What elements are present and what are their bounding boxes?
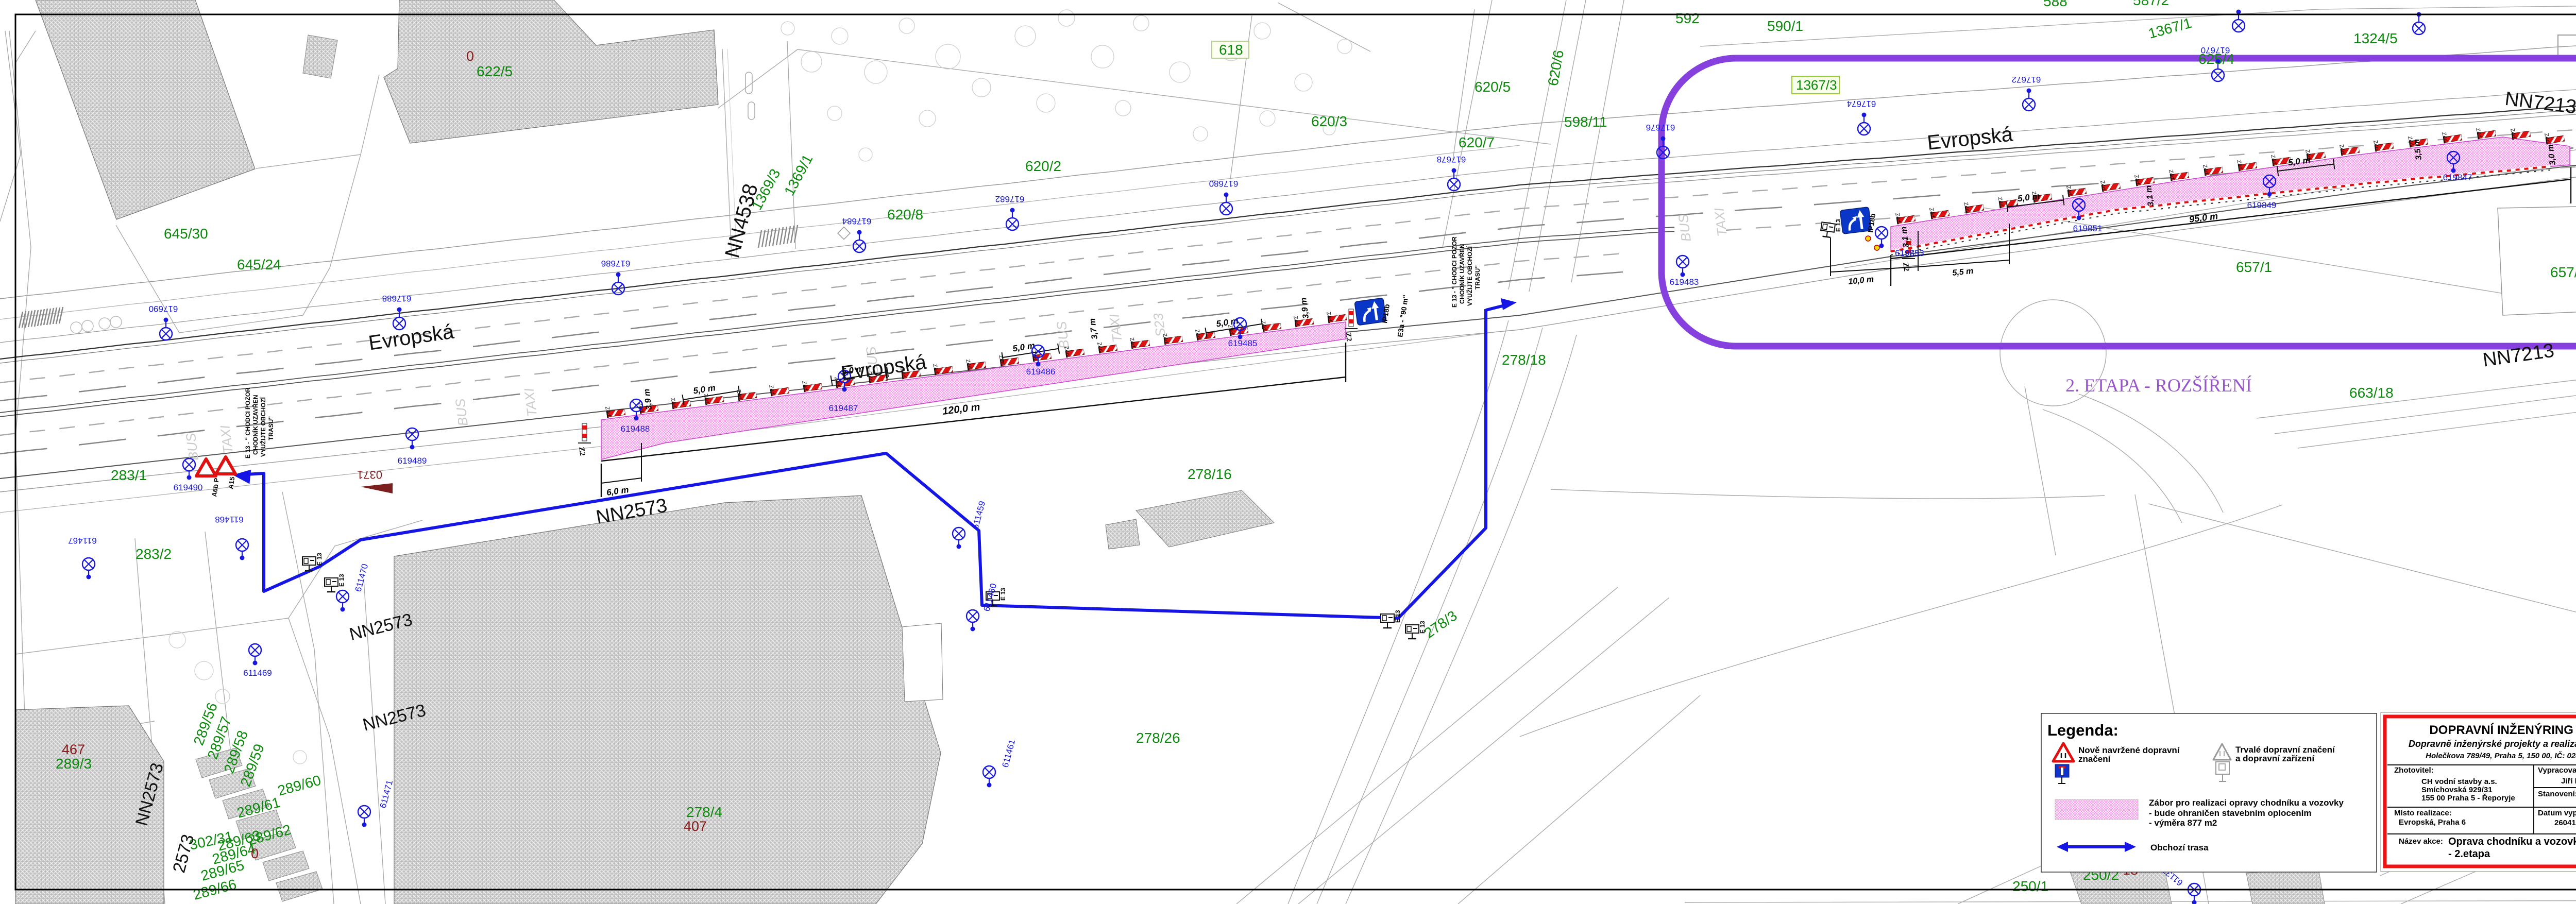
svg-text:617676: 617676 — [1646, 123, 1675, 132]
svg-text:619851: 619851 — [2073, 224, 2103, 233]
svg-text:619486: 619486 — [1026, 367, 1056, 377]
svg-text:TRASU": TRASU" — [1474, 265, 1481, 289]
svg-text:619487: 619487 — [829, 403, 858, 413]
svg-text:E 13: E 13 — [1394, 610, 1401, 623]
svg-text:620/8: 620/8 — [887, 207, 923, 223]
svg-text:Místo realizace:: Místo realizace: — [2394, 809, 2452, 817]
svg-text:CHODNÍK UZAVŘEN: CHODNÍK UZAVŘEN — [1458, 244, 1466, 304]
svg-text:TRASU": TRASU" — [267, 416, 275, 440]
svg-text:588: 588 — [2043, 0, 2067, 9]
svg-text:278/18: 278/18 — [1502, 352, 1546, 368]
svg-text:VYUŽIJTE OBCHOZÍ: VYUŽIJTE OBCHOZÍ — [259, 397, 267, 457]
svg-text:Obchozí trasa: Obchozí trasa — [2150, 843, 2209, 852]
svg-text:2. ETAPA - ROZŠÍŘENÍ: 2. ETAPA - ROZŠÍŘENÍ — [2065, 375, 2252, 396]
svg-text:617678: 617678 — [1437, 155, 1466, 164]
svg-text:E 13: E 13 — [338, 574, 345, 587]
svg-text:590/1: 590/1 — [1767, 18, 1803, 34]
svg-text:Z2: Z2 — [577, 446, 586, 456]
svg-text:0: 0 — [466, 48, 474, 64]
svg-text:619485: 619485 — [1228, 338, 1258, 348]
svg-text:598/11: 598/11 — [1564, 114, 1607, 130]
svg-text:622/5: 622/5 — [477, 63, 513, 79]
svg-text:155 00 Praha 5 - Řeporyje: 155 00 Praha 5 - Řeporyje — [2421, 793, 2515, 803]
svg-text:619483: 619483 — [1670, 277, 1699, 287]
svg-text:- bude ohraničen stavebním opl: - bude ohraničen stavebním oplocením — [2149, 808, 2312, 818]
svg-text:Název akce:: Název akce: — [2399, 837, 2443, 846]
svg-text:E 13: E 13 — [316, 553, 323, 566]
svg-text:618: 618 — [1219, 42, 1243, 58]
svg-text:250/1: 250/1 — [2012, 878, 2048, 894]
svg-text:Jiří Hnát: Jiří Hnát — [2561, 777, 2576, 786]
svg-text:663/18: 663/18 — [2349, 385, 2394, 401]
svg-text:592: 592 — [1675, 10, 1700, 26]
svg-text:- 2.etapa: - 2.etapa — [2448, 848, 2490, 860]
svg-text:611468: 611468 — [215, 515, 243, 524]
svg-text:Zábor pro realizaci opravy cho: Zábor pro realizaci opravy chodníku a vo… — [2149, 798, 2344, 808]
svg-text:620/5: 620/5 — [1475, 79, 1511, 95]
svg-text:617674: 617674 — [1847, 99, 1876, 109]
svg-text:E 13 - " CHODCI POZOR: E 13 - " CHODCI POZOR — [244, 387, 251, 458]
svg-text:Stanovení:: Stanovení: — [2538, 790, 2576, 798]
svg-text:CH vodní stavby a.s.: CH vodní stavby a.s. — [2421, 777, 2497, 786]
svg-text:619490: 619490 — [174, 483, 203, 492]
svg-text:619853: 619853 — [1895, 248, 1924, 258]
svg-text:289/3: 289/3 — [56, 756, 92, 772]
svg-text:278/4: 278/4 — [686, 804, 722, 820]
svg-text:617682: 617682 — [995, 194, 1025, 204]
svg-text:VYUŽIJTE OBCHOZÍ: VYUŽIJTE OBCHOZÍ — [1466, 246, 1473, 306]
svg-text:Evropská, Praha 6: Evropská, Praha 6 — [2399, 818, 2466, 827]
svg-text:283/2: 283/2 — [135, 546, 172, 562]
svg-text:407: 407 — [684, 818, 707, 834]
svg-text:619847: 619847 — [2443, 173, 2472, 182]
svg-text:617686: 617686 — [601, 259, 631, 268]
svg-text:587/2: 587/2 — [2133, 0, 2169, 8]
svg-text:620/2: 620/2 — [1025, 158, 1061, 174]
svg-text:620/7: 620/7 — [1459, 134, 1495, 150]
svg-text:Dopravně inženýrské projekty a: Dopravně inženýrské projekty a realizace… — [2409, 739, 2576, 749]
svg-text:620/3: 620/3 — [1311, 113, 1347, 129]
svg-text:611467: 611467 — [68, 536, 96, 545]
svg-text:617672: 617672 — [2012, 75, 2041, 84]
svg-text:- výměra 877 m2: - výměra 877 m2 — [2149, 818, 2217, 828]
svg-text:Z2: Z2 — [1344, 332, 1353, 342]
svg-text:619489: 619489 — [398, 456, 427, 466]
svg-text:617684: 617684 — [842, 216, 872, 226]
svg-text:E 13: E 13 — [1835, 219, 1842, 232]
svg-text:467: 467 — [62, 742, 85, 757]
svg-text:Legenda:: Legenda: — [2047, 721, 2119, 739]
svg-text:a dopravní zařízení: a dopravní zařízení — [2235, 754, 2315, 763]
svg-text:657/1: 657/1 — [2236, 259, 2272, 275]
svg-text:625/4: 625/4 — [2198, 51, 2234, 67]
svg-text:278/16: 278/16 — [1188, 466, 1232, 482]
svg-text:1324/5: 1324/5 — [2353, 30, 2398, 46]
svg-text:260413: 260413 — [2554, 818, 2576, 827]
svg-text:619849: 619849 — [2247, 200, 2277, 210]
svg-text:645/30: 645/30 — [164, 226, 208, 242]
svg-text:278/26: 278/26 — [1136, 730, 1180, 746]
svg-text:617688: 617688 — [382, 294, 412, 303]
svg-text:Datum vypracování: Datum vypracování — [2538, 809, 2576, 817]
svg-text:Zhotovitel:: Zhotovitel: — [2394, 766, 2434, 775]
svg-text:Oprava chodníku a vozovky: Oprava chodníku a vozovky — [2448, 836, 2576, 847]
svg-text:Vypracoval:: Vypracoval: — [2538, 766, 2576, 775]
svg-text:657/3: 657/3 — [2550, 264, 2576, 280]
svg-text:Holečkova 789/49, Praha 5, 150: Holečkova 789/49, Praha 5, 150 00, IČ: 0… — [2426, 751, 2576, 760]
svg-text:619488: 619488 — [621, 424, 650, 434]
svg-text:DOPRAVNÍ INŽENÝRING PRAHA S.R.: DOPRAVNÍ INŽENÝRING PRAHA S.R.O. — [2429, 723, 2576, 737]
svg-text:617680: 617680 — [1209, 179, 1239, 189]
svg-text:Smíchovská 929/31: Smíchovská 929/31 — [2421, 786, 2493, 794]
svg-text:617690: 617690 — [149, 304, 178, 314]
svg-text:CHODNÍK UZAVŘEN: CHODNÍK UZAVŘEN — [251, 395, 259, 455]
svg-text:0: 0 — [251, 846, 259, 861]
svg-text:645/24: 645/24 — [237, 257, 281, 272]
svg-text:0371: 0371 — [357, 468, 382, 481]
svg-text:E 13: E 13 — [999, 588, 1007, 601]
svg-text:značení: značení — [2078, 754, 2111, 764]
svg-text:611469: 611469 — [243, 668, 272, 678]
svg-text:283/1: 283/1 — [111, 467, 147, 483]
svg-text:1367/3: 1367/3 — [1796, 77, 1837, 93]
svg-text:E 13 - " CHODCI POZOR: E 13 - " CHODCI POZOR — [1451, 236, 1458, 308]
